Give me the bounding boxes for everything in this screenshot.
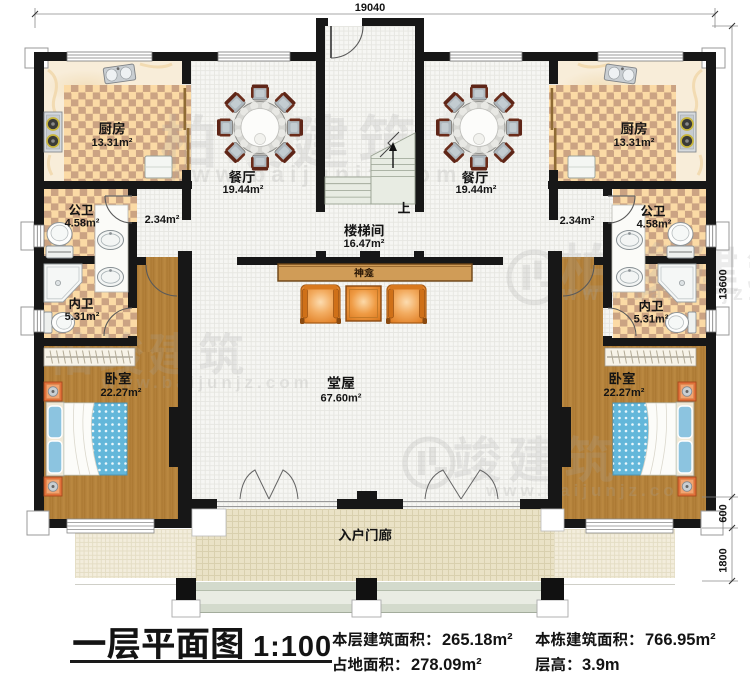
svg-text:16.47m²: 16.47m² — [344, 238, 385, 250]
svg-text:2.34m²: 2.34m² — [145, 214, 180, 226]
svg-text:4.58m²: 4.58m² — [65, 218, 100, 230]
svg-text:1:100: 1:100 — [253, 631, 332, 663]
svg-text:5.31m²: 5.31m² — [634, 314, 669, 326]
svg-text:19.44m²: 19.44m² — [456, 184, 497, 196]
svg-text:2.34m²: 2.34m² — [560, 215, 595, 227]
svg-text:19.44m²: 19.44m² — [223, 184, 264, 196]
svg-text:1800: 1800 — [718, 548, 730, 572]
svg-text:13600: 13600 — [718, 269, 730, 300]
svg-text:766.95m²: 766.95m² — [645, 631, 716, 649]
svg-text:265.18m²: 265.18m² — [442, 631, 513, 649]
svg-text:www.baijunjz.com: www.baijunjz.com — [485, 481, 697, 500]
svg-text:22.27m²: 22.27m² — [604, 387, 645, 399]
svg-text:22.27m²: 22.27m² — [101, 387, 142, 399]
svg-text:3.9m: 3.9m — [582, 656, 620, 674]
svg-text:4.58m²: 4.58m² — [637, 219, 672, 231]
svg-text:5.31m²: 5.31m² — [65, 311, 100, 323]
svg-text:67.60m²: 67.60m² — [321, 393, 362, 405]
svg-text:19040: 19040 — [355, 2, 386, 14]
svg-text:13.31m²: 13.31m² — [614, 137, 655, 149]
svg-text:278.09m²: 278.09m² — [411, 656, 482, 674]
svg-text:13.31m²: 13.31m² — [92, 137, 133, 149]
svg-text:600: 600 — [718, 504, 730, 522]
